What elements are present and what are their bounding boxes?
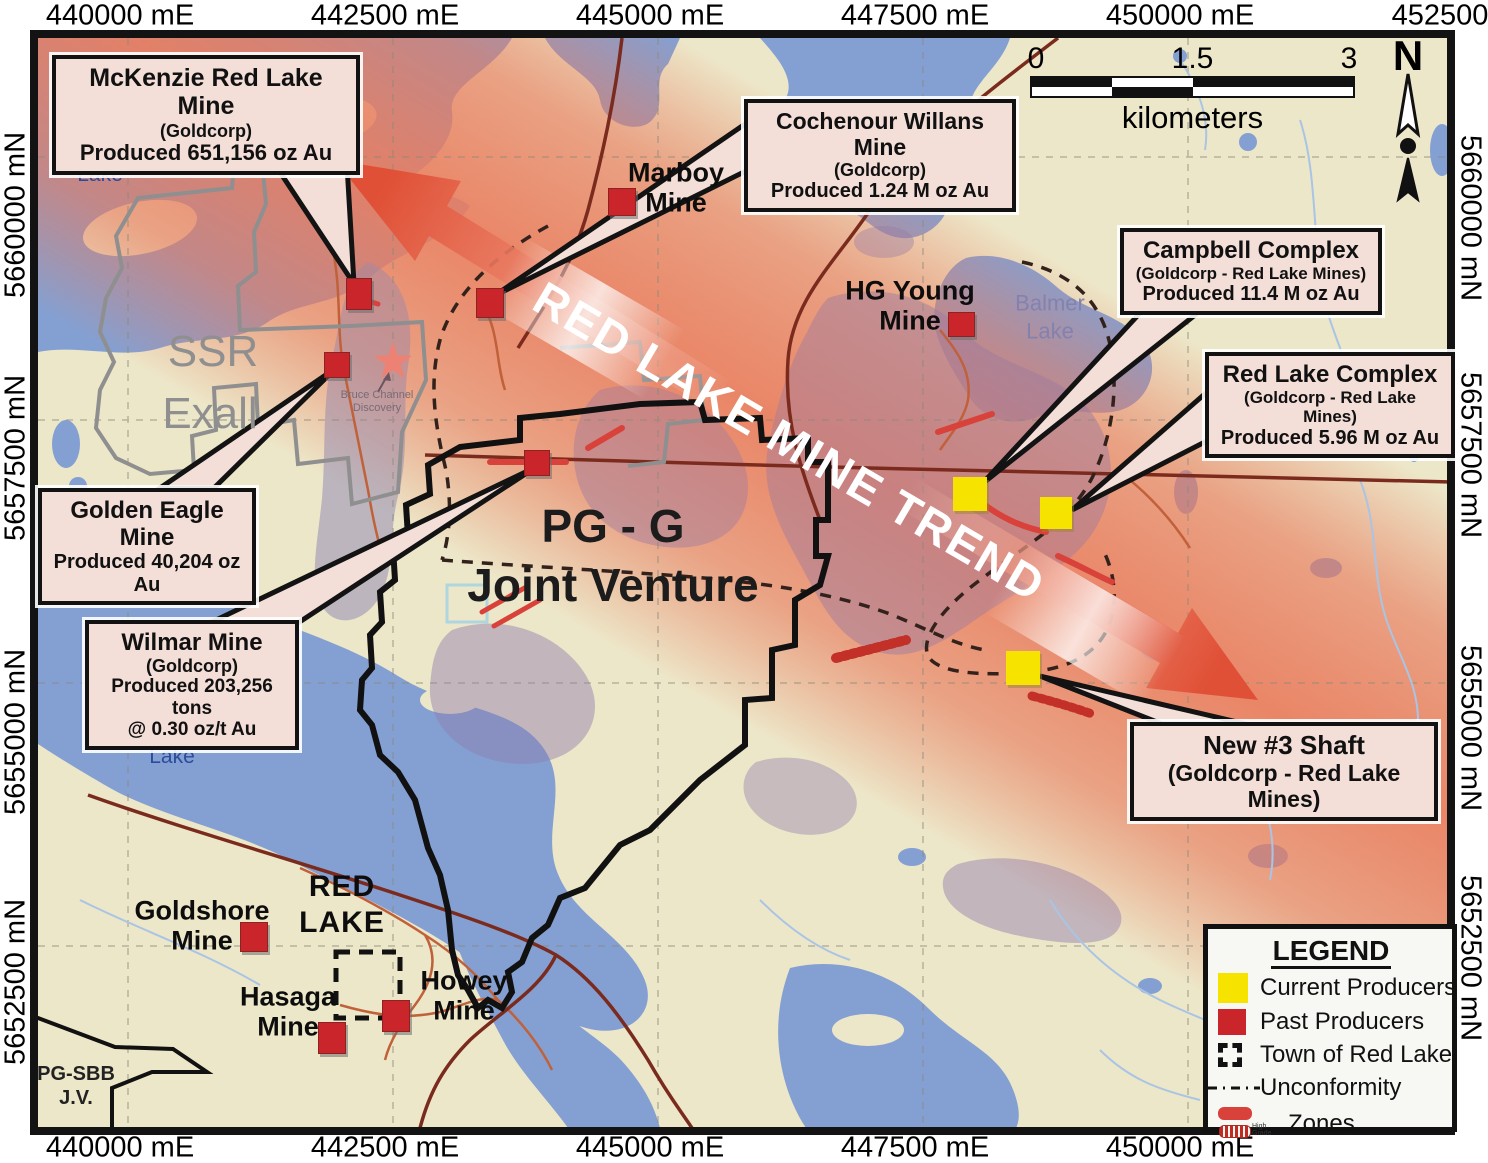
- axis-left-2: 5655000 mN: [0, 649, 33, 815]
- callout-subtitle: (Goldcorp): [754, 160, 1006, 180]
- callout-title: Campbell Complex: [1130, 237, 1372, 264]
- axis-top-1: 442500 mE: [311, 0, 459, 33]
- marker-howey-mine: [382, 1000, 410, 1032]
- current-producer-icon: [1218, 973, 1260, 1003]
- axis-right-3: 5652500 mN: [1454, 875, 1487, 1041]
- marker-red-lake-complex: [1040, 497, 1072, 529]
- label-exall: Exall: [162, 389, 257, 439]
- callout-wilmar: Wilmar Mine (Goldcorp) Produced 203,256 …: [85, 620, 299, 750]
- label-howey-mine: Howey Mine: [420, 966, 507, 1025]
- scale-tick-0: 0: [1028, 42, 1045, 76]
- marker-hasaga-mine: [318, 1022, 346, 1054]
- legend-label: Zones: [1288, 1110, 1355, 1138]
- axis-top-4: 450000 mE: [1106, 0, 1254, 33]
- callout-body2: @ 0.30 oz/t Au: [95, 719, 289, 740]
- callout-red-lake-complex: Red Lake Complex (Goldcorp - Red Lake Mi…: [1205, 352, 1455, 458]
- callout-body: Produced 1.24 M oz Au: [754, 180, 1006, 203]
- label-pgg-joint-venture: PG - G Joint Venture: [447, 497, 779, 615]
- label-line: Mine: [628, 188, 724, 218]
- legend-title: LEGEND: [1218, 935, 1444, 967]
- label-line: Mine: [420, 996, 507, 1026]
- scale-bar-graphic: [1030, 76, 1355, 98]
- callout-title: Cochenour Willans Mine: [754, 108, 1006, 160]
- marker-mckenzie-mine: [346, 278, 372, 310]
- marker-wilmar-mine: [524, 450, 550, 476]
- marker-goldshore-mine: [240, 922, 268, 952]
- callout-subtitle: (Goldcorp): [62, 121, 350, 141]
- axis-top-3: 447500 mE: [841, 0, 989, 33]
- callout-new-3-shaft: New #3 Shaft (Goldcorp - Red Lake Mines): [1130, 722, 1438, 821]
- marker-golden-eagle-mine: [324, 352, 350, 378]
- legend-label: Town of Red Lake: [1260, 1041, 1452, 1069]
- axis-left-0: 5660000 mN: [0, 132, 33, 298]
- legend-row-zones: High Grade Zones: [1218, 1107, 1444, 1141]
- label-line: Discovery: [341, 402, 414, 415]
- callout-subtitle: (Goldcorp - Red Lake Mines): [1140, 760, 1428, 812]
- callout-subtitle: (Goldcorp - Red Lake Mines): [1130, 264, 1372, 283]
- unconformity-line-icon: [1208, 1084, 1260, 1092]
- axis-top-0: 440000 mE: [46, 0, 194, 33]
- scale-tick-1: 1.5: [1172, 42, 1214, 76]
- legend-title-text: LEGEND: [1271, 935, 1392, 969]
- marker-marboy-mine: [608, 188, 636, 216]
- legend-row-town: Town of Red Lake: [1218, 1041, 1444, 1069]
- axis-top-5: 452500: [1392, 0, 1488, 33]
- axis-bottom-3: 447500 mE: [841, 1132, 989, 1163]
- label-line: Bruce Channel: [341, 389, 414, 402]
- town-boundary-icon: [1218, 1043, 1260, 1067]
- axis-right-1: 5657500 mN: [1454, 372, 1487, 538]
- callout-subtitle: (Goldcorp): [95, 656, 289, 676]
- callout-body: Produced 203,256 tons: [95, 676, 289, 719]
- axis-bottom-0: 440000 mE: [46, 1132, 194, 1163]
- label-line: PG - G: [447, 497, 779, 556]
- scale-bar: 0 1.5 3 kilometers: [1030, 42, 1355, 136]
- north-label: N: [1393, 32, 1423, 80]
- axis-left-3: 5652500 mN: [0, 899, 33, 1065]
- callout-campbell: Campbell Complex (Goldcorp - Red Lake Mi…: [1120, 228, 1382, 315]
- callout-cochenour: Cochenour Willans Mine (Goldcorp) Produc…: [744, 99, 1016, 212]
- callout-title: Golden Eagle Mine: [48, 497, 246, 551]
- label-line: LAKE: [299, 905, 385, 941]
- callout-title: Wilmar Mine: [95, 629, 289, 656]
- callout-title: Red Lake Complex: [1215, 361, 1445, 388]
- legend-row-past: Past Producers: [1218, 1008, 1444, 1036]
- callout-title: McKenzie Red Lake Mine: [62, 64, 350, 121]
- axis-bottom-1: 442500 mE: [311, 1132, 459, 1163]
- label-line: Marboy: [628, 158, 724, 188]
- label-line: Lake: [1015, 317, 1085, 345]
- callout-body: Produced 40,204 oz Au: [48, 551, 246, 596]
- label-line: J.V.: [37, 1086, 115, 1110]
- label-bruce-channel: Bruce Channel Discovery: [341, 389, 414, 415]
- axis-bottom-2: 445000 mE: [576, 1132, 724, 1163]
- scale-bar-ticks: 0 1.5 3: [1030, 42, 1355, 76]
- marker-cochenour-mine: [476, 288, 504, 318]
- label-pg-sbb-jv: PG-SBB J.V.: [37, 1062, 115, 1110]
- legend-row-unconformity: Unconformity: [1208, 1074, 1444, 1102]
- axis-right-0: 5660000 mN: [1454, 135, 1487, 301]
- callout-mckenzie: McKenzie Red Lake Mine (Goldcorp) Produc…: [52, 55, 360, 175]
- callout-body: Produced 11.4 M oz Au: [1130, 283, 1372, 306]
- zones-icon: High Grade: [1218, 1107, 1260, 1141]
- red-lake-mine-trend-map: 440000 mE 442500 mE 445000 mE 447500 mE …: [0, 0, 1488, 1163]
- callout-title: New #3 Shaft: [1140, 731, 1428, 760]
- axis-left-1: 5657500 mN: [0, 375, 33, 541]
- axis-top-2: 445000 mE: [576, 0, 724, 33]
- scale-tick-2: 3: [1341, 42, 1358, 76]
- label-line: Balmer: [1015, 290, 1085, 318]
- label-line: Hasaga: [240, 982, 336, 1012]
- legend-label: Unconformity: [1260, 1074, 1401, 1102]
- label-line: Joint Venture: [447, 556, 779, 615]
- callout-subtitle: (Goldcorp - Red Lake Mines): [1215, 388, 1445, 426]
- marker-campbell-complex: [953, 477, 987, 511]
- label-red-lake-town: RED LAKE: [299, 869, 385, 941]
- scale-bar-unit: kilometers: [1030, 100, 1355, 136]
- legend-row-current: Current Producers: [1218, 973, 1444, 1003]
- label-line: HG Young: [845, 276, 975, 306]
- label-ssr: SSR: [168, 327, 258, 377]
- label-line: RED: [299, 869, 385, 905]
- marker-hg-young-mine: [948, 312, 975, 337]
- callout-body: Produced 651,156 oz Au: [62, 141, 350, 166]
- callout-golden-eagle: Golden Eagle Mine Produced 40,204 oz Au: [38, 488, 256, 605]
- legend-label: Current Producers: [1260, 974, 1456, 1002]
- past-producer-icon: [1218, 1009, 1260, 1035]
- label-balmer-lake: Balmer Lake: [1015, 290, 1085, 345]
- marker-new-3-shaft: [1006, 651, 1040, 685]
- high-grade-label: High Grade: [1252, 1123, 1286, 1137]
- label-line: Howey: [420, 966, 507, 996]
- label-marboy-mine: Marboy Mine: [628, 158, 724, 217]
- legend-label: Past Producers: [1260, 1008, 1424, 1036]
- legend: LEGEND Current Producers Past Producers …: [1203, 924, 1457, 1132]
- label-line: PG-SBB: [37, 1062, 115, 1086]
- axis-right-2: 5655000 mN: [1454, 645, 1487, 811]
- callout-body: Produced 5.96 M oz Au: [1215, 427, 1445, 450]
